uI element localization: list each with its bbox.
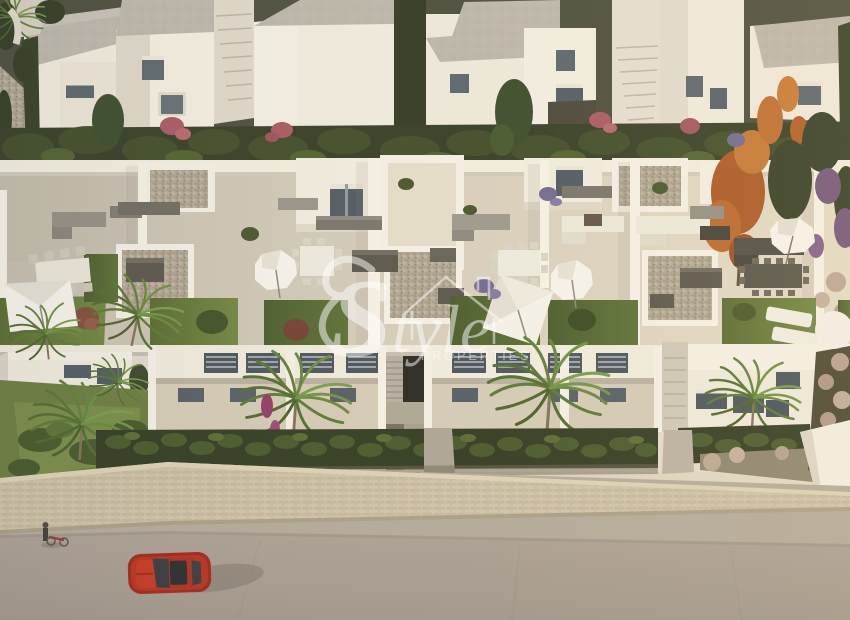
svg-text:S: S: [330, 257, 392, 381]
svg-text:PROPERTIES: PROPERTIES: [421, 349, 531, 363]
